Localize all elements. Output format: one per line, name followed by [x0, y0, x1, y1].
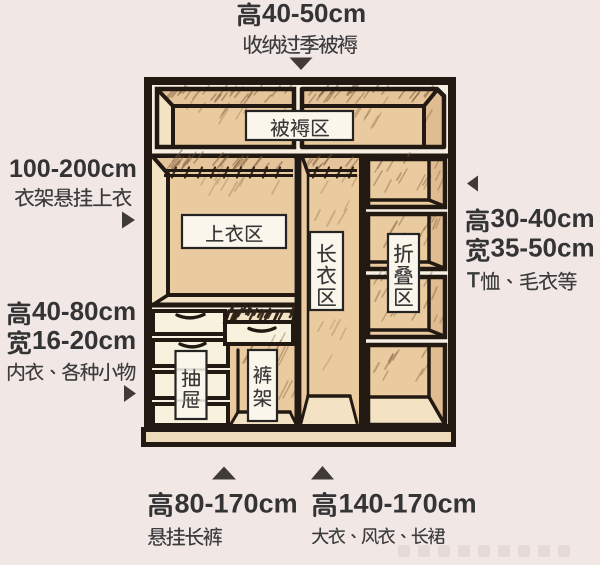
- svg-text:35-50cm: 35-50cm: [491, 233, 595, 263]
- svg-text:30-40cm: 30-40cm: [491, 203, 595, 233]
- svg-text:40-50cm: 40-50cm: [262, 0, 366, 28]
- svg-text:16-20cm: 16-20cm: [32, 325, 136, 355]
- svg-text:100-200cm: 100-200cm: [9, 155, 137, 183]
- svg-text:T: T: [467, 269, 480, 292]
- svg-text:40-80cm: 40-80cm: [32, 296, 136, 326]
- svg-text:80-170cm: 80-170cm: [175, 489, 298, 519]
- svg-text:140-170cm: 140-170cm: [339, 489, 477, 519]
